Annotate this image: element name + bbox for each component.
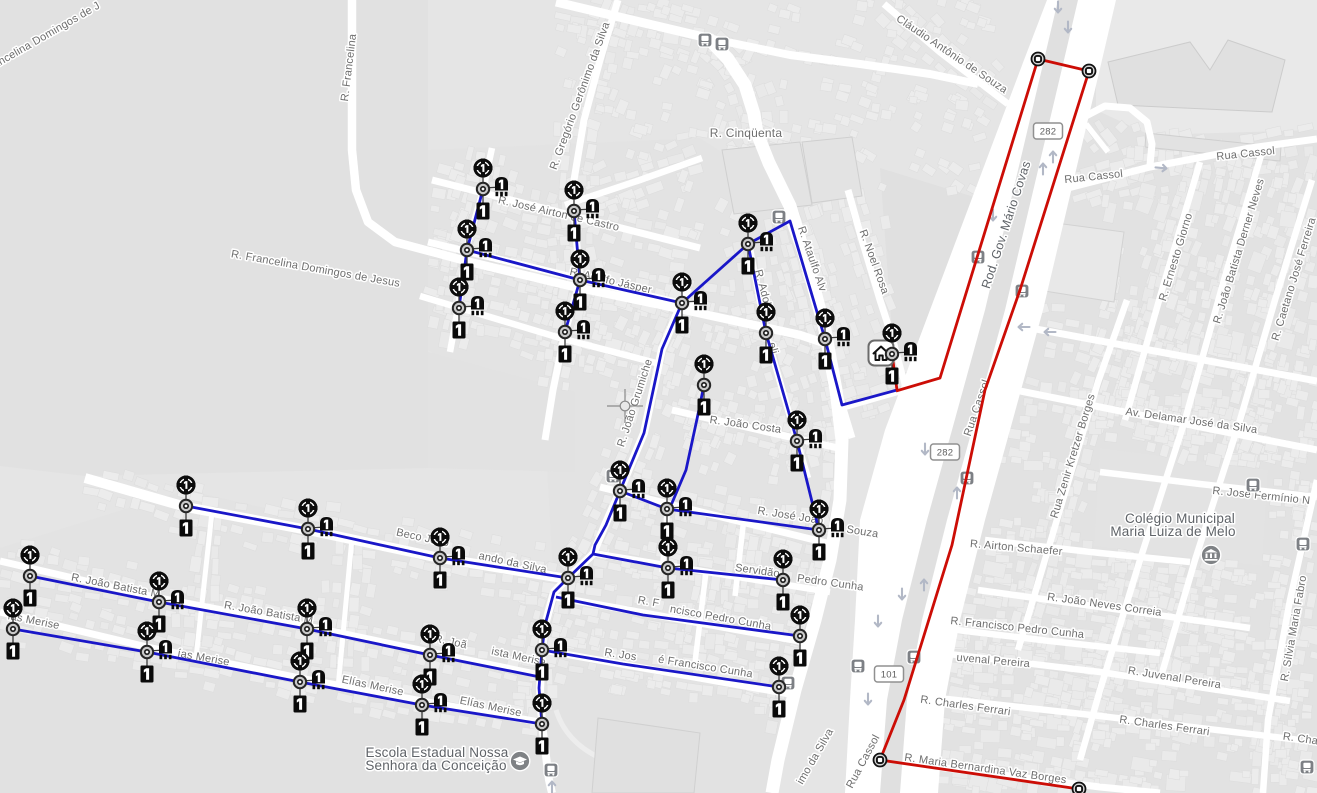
svg-text:Senhora da Conceição: Senhora da Conceição [365,758,506,773]
svg-text:282: 282 [1040,127,1056,138]
svg-text:R. Cinqüenta: R. Cinqüenta [710,126,783,140]
svg-text:101: 101 [881,670,897,681]
svg-text:Maria Luiza de Melo: Maria Luiza de Melo [1110,524,1235,539]
svg-text:282: 282 [937,448,953,459]
